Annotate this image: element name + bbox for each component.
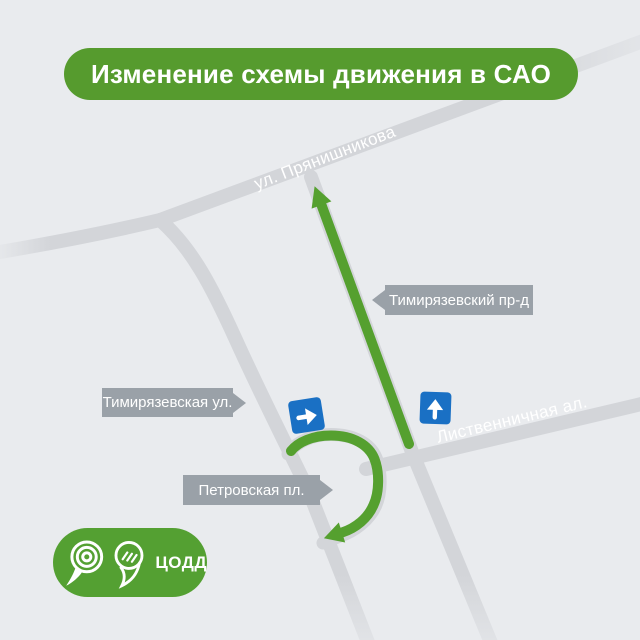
logo-org-name: ЦОДД xyxy=(155,553,207,573)
callout-label: Тимирязевский пр-д xyxy=(389,292,529,309)
header-banner: Изменение схемы движения в САО xyxy=(64,48,578,100)
traffic-scheme-infographic: Изменение схемы движения в САО ул. Пряни… xyxy=(0,0,640,640)
callout-label: Тимирязевская ул. xyxy=(103,394,233,411)
sign-one-way-right xyxy=(288,397,326,435)
callout-timiryazevskaya-ul: Тимирязевская ул. xyxy=(102,388,233,417)
codd-pin-icon xyxy=(108,534,148,592)
codd-logo-badge: ЦОДД xyxy=(53,528,207,597)
callout-pointer-left xyxy=(372,290,385,310)
callout-pointer-right xyxy=(320,480,333,500)
callout-label: Петровская пл. xyxy=(198,482,304,499)
page-title: Изменение схемы движения в САО xyxy=(91,59,551,90)
up-arrow-icon xyxy=(423,395,449,422)
sign-one-way-up xyxy=(419,391,451,424)
right-arrow-icon xyxy=(292,401,322,431)
callout-petrovskaya-pl: Петровская пл. xyxy=(183,475,320,505)
route-arrow-timiryazevsky xyxy=(312,186,409,444)
callout-pointer-right xyxy=(233,393,246,413)
callout-timiryazevsky-proezd: Тимирязевский пр-д xyxy=(385,285,533,315)
moscow-transport-icon xyxy=(64,534,106,592)
